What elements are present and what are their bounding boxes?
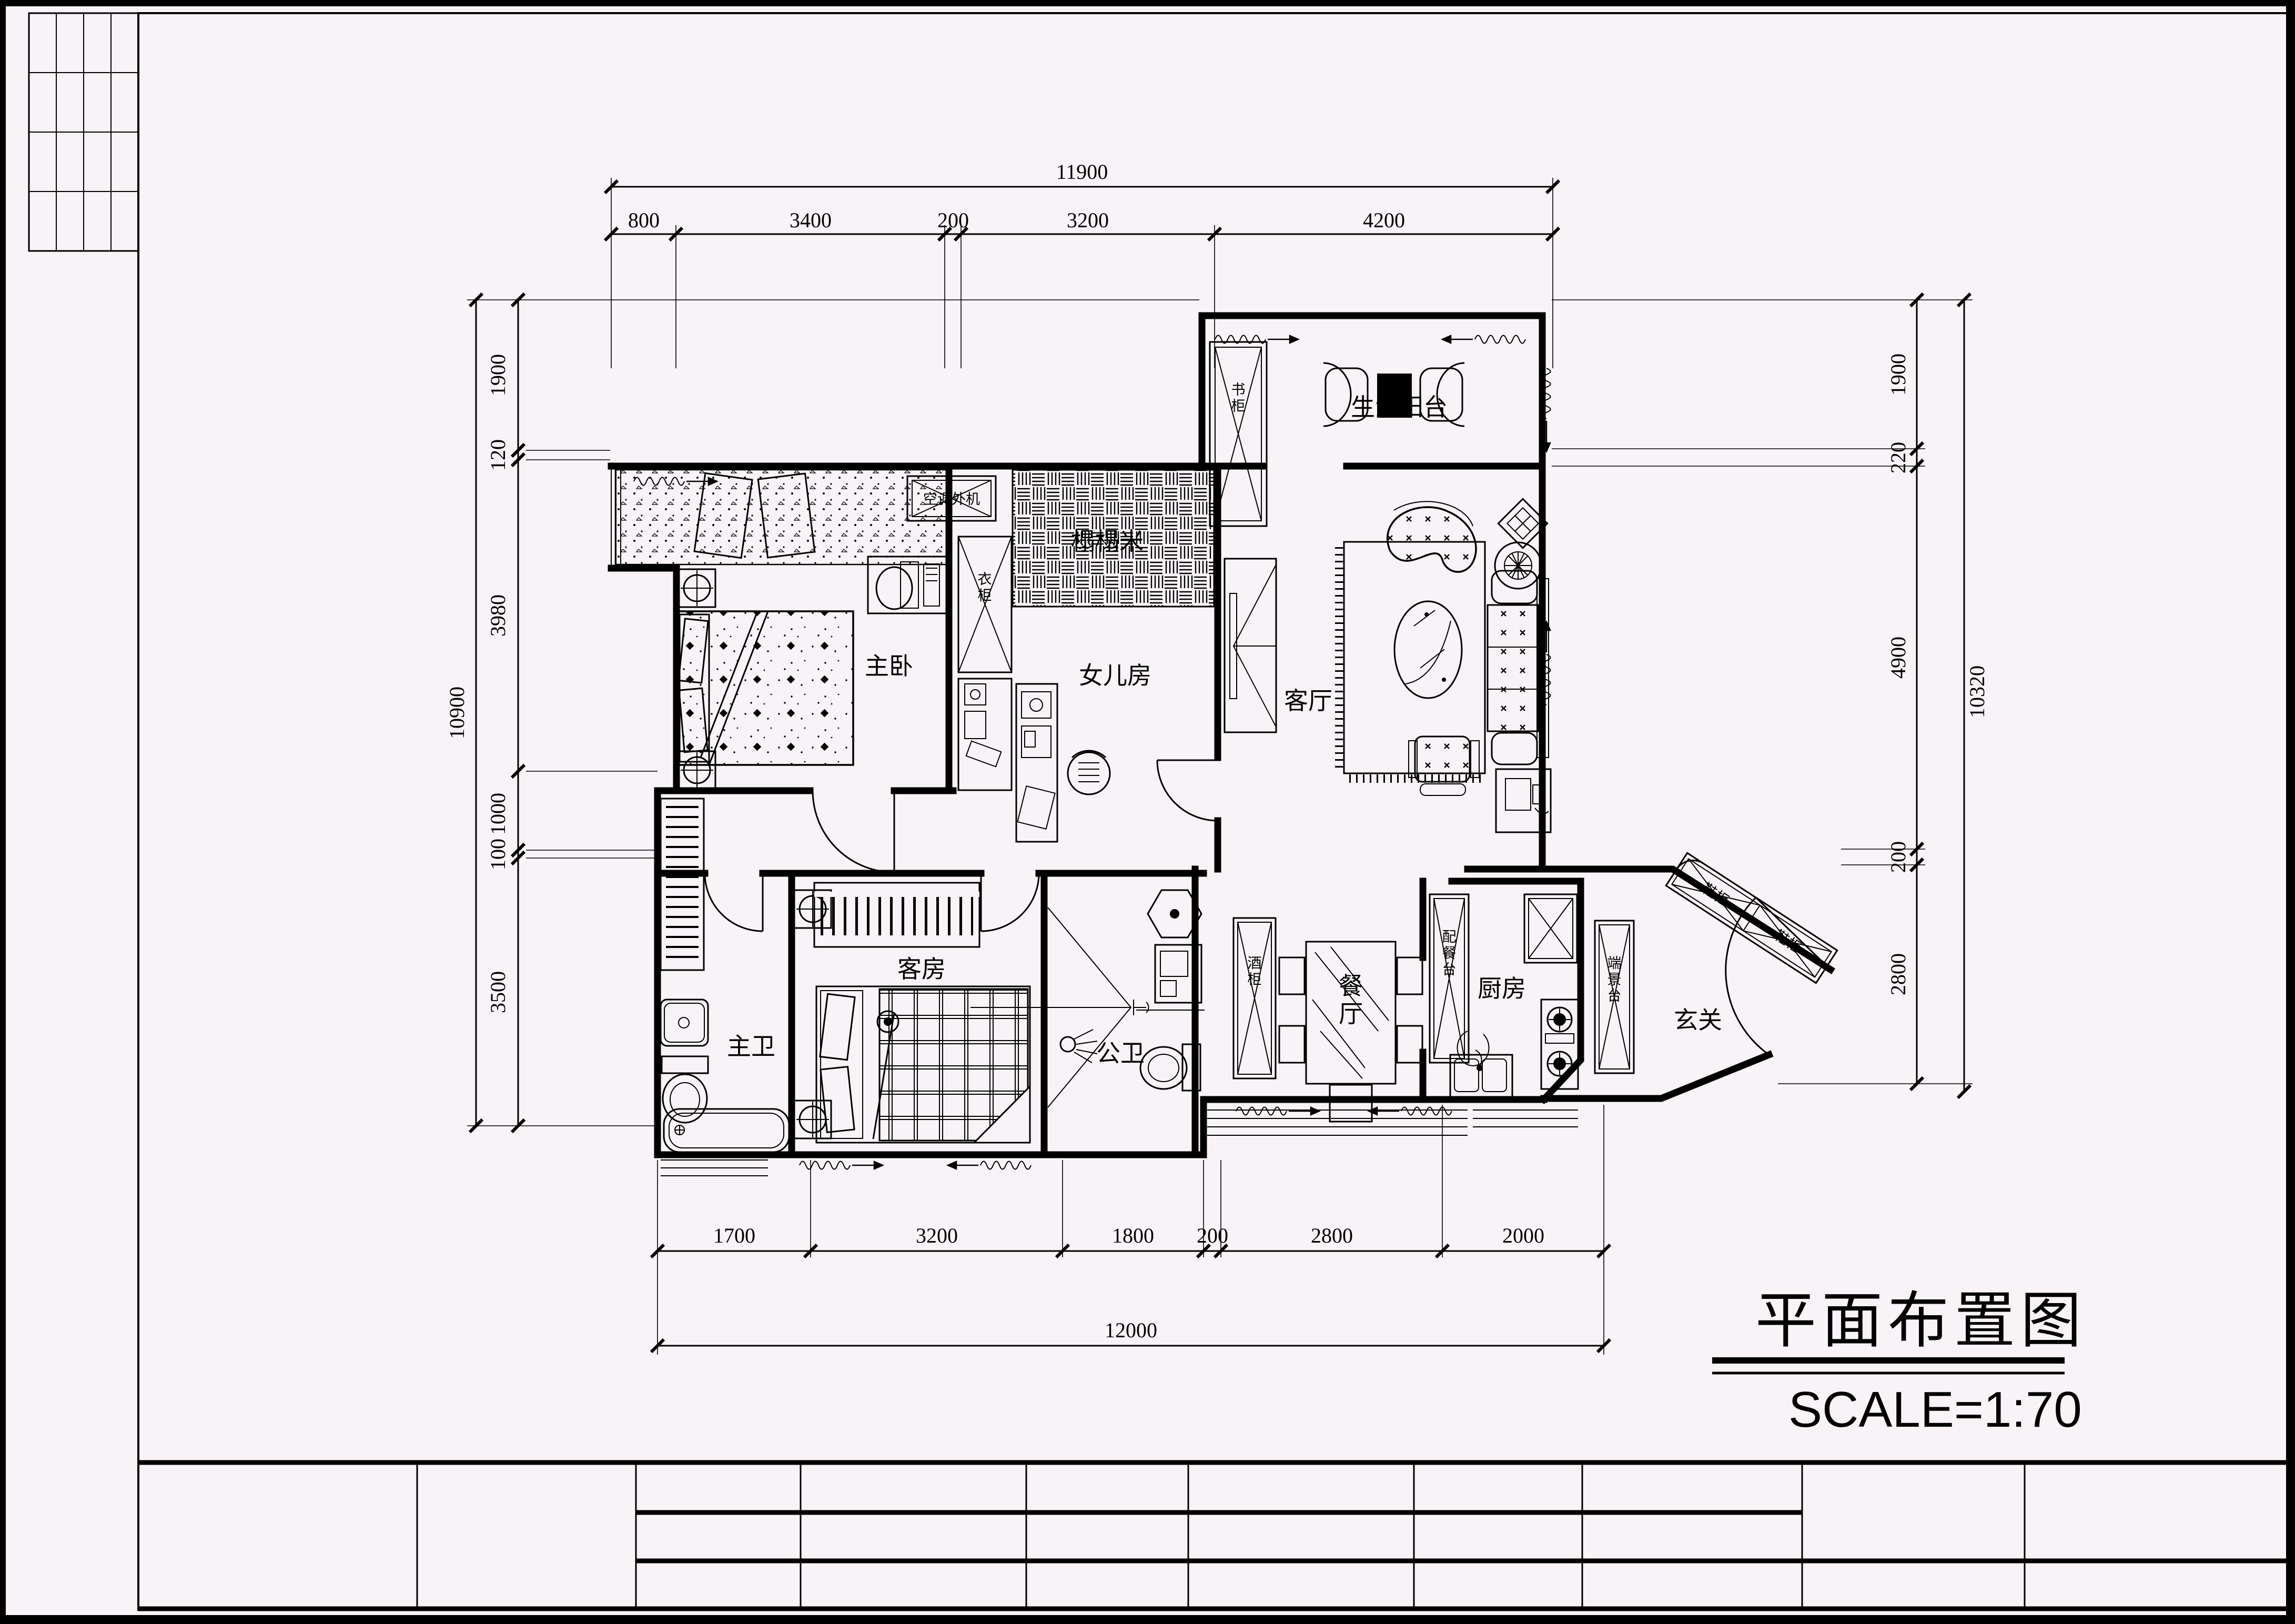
service-balcony-label: 生活阳台 bbox=[1351, 394, 1448, 421]
coffee-table-kidney bbox=[1388, 501, 1476, 572]
sheet-border bbox=[0, 0, 2295, 1624]
drawing-title-text: 平面布置图 bbox=[1755, 1288, 2087, 1355]
dim-bottom-seg-2: 1800 bbox=[1112, 1224, 1154, 1247]
fridge bbox=[1524, 894, 1577, 963]
signature-grid bbox=[29, 13, 138, 276]
dim-left-overall: 10900 bbox=[445, 687, 469, 739]
tv-arrow-icon bbox=[1234, 566, 1276, 726]
dining-table: 餐厅 bbox=[1279, 942, 1422, 1122]
dining-room: 酒柜 餐厅 bbox=[1234, 918, 1422, 1122]
wine-cabinet: 酒柜 bbox=[1234, 918, 1276, 1078]
dim-top-seg-4: 4200 bbox=[1363, 208, 1405, 232]
doors bbox=[705, 760, 1831, 1055]
dim-bottom-seg-5: 2000 bbox=[1502, 1224, 1544, 1247]
armchair bbox=[1409, 737, 1479, 795]
dim-left-seg-1: 120 bbox=[486, 439, 510, 471]
dim-bottom-seg-0: 1700 bbox=[713, 1224, 755, 1247]
master-bedroom: 主卧 bbox=[678, 557, 947, 789]
dim-left-seg-0: 1900 bbox=[486, 354, 510, 396]
dim-bottom-seg-4: 2800 bbox=[1311, 1224, 1353, 1247]
guest-room: 客房 bbox=[794, 883, 1030, 1143]
dim-chain-top: 11900 800 3400 200 3200 4200 bbox=[605, 160, 1559, 368]
toilet-public bbox=[1140, 1044, 1200, 1091]
dining-room-label: 餐厅 bbox=[1339, 972, 1363, 1027]
louver-cabinet bbox=[661, 799, 704, 970]
wine-cabinet-label: 酒柜 bbox=[1248, 955, 1262, 987]
console-table-label: 端景台 bbox=[1607, 955, 1622, 1004]
fan-plant bbox=[1495, 542, 1541, 589]
tv-wall bbox=[1225, 559, 1276, 732]
master-bedroom-label: 主卧 bbox=[865, 652, 913, 680]
dim-bottom-overall: 12000 bbox=[1105, 1318, 1157, 1342]
dim-right-seg-3: 200 bbox=[1886, 841, 1910, 873]
living-room: 客厅 bbox=[1225, 499, 1551, 832]
dim-top-seg-3: 3200 bbox=[1067, 208, 1109, 232]
dim-left-seg-5: 3500 bbox=[486, 971, 510, 1013]
wardrobe-label: 衣柜 bbox=[978, 571, 992, 603]
dim-bottom-seg-1: 3200 bbox=[916, 1224, 958, 1247]
dim-top-overall: 11900 bbox=[1056, 160, 1108, 184]
bath-sink bbox=[661, 1000, 708, 1046]
dim-right-seg-0: 1900 bbox=[1886, 354, 1910, 396]
shower-head bbox=[1060, 1030, 1097, 1063]
kitchen: 配餐台 厨房 bbox=[1430, 894, 1578, 1097]
title-block bbox=[138, 1462, 2287, 1609]
dim-left-seg-2: 3980 bbox=[486, 594, 510, 637]
cad-drawing: 11900 800 3400 200 3200 4200 1700 3200 1… bbox=[0, 0, 2295, 1624]
wardrobe: 衣柜 bbox=[958, 537, 1012, 790]
tatami-label: 榻榻米 bbox=[1071, 528, 1144, 555]
floor-plan-sheet: 11900 800 3400 200 3200 4200 1700 3200 1… bbox=[0, 0, 2295, 1624]
bay-window-seat bbox=[615, 470, 947, 564]
lamp-symbol bbox=[679, 569, 715, 607]
dim-left-seg-3: 1000 bbox=[486, 793, 510, 835]
entry-area: 鞋柜 鞋柜 端景台 玄关 bbox=[1595, 853, 1837, 1073]
dim-top-seg-0: 800 bbox=[628, 208, 660, 232]
console-table: 端景台 bbox=[1595, 921, 1634, 1073]
serving-counter: 配餐台 bbox=[1430, 894, 1469, 1063]
daughter-room-label: 女儿房 bbox=[1079, 662, 1151, 689]
guest-bed bbox=[816, 986, 1030, 1143]
service-balcony: 书柜 生活阳台 bbox=[1210, 342, 1464, 526]
bathtub bbox=[664, 1109, 789, 1152]
dim-right-seg-1: 220 bbox=[1886, 442, 1910, 473]
shoe-cabinet: 鞋柜 鞋柜 bbox=[1666, 853, 1837, 983]
guest-room-door bbox=[981, 873, 1039, 931]
kitchen-label: 厨房 bbox=[1478, 975, 1526, 1002]
dim-top-seg-1: 3400 bbox=[790, 208, 832, 232]
master-bedroom-door bbox=[813, 791, 894, 872]
entry-label: 玄关 bbox=[1674, 1006, 1722, 1034]
serving-counter-label: 配餐台 bbox=[1442, 929, 1457, 977]
dim-right-seg-2: 4900 bbox=[1886, 637, 1910, 679]
daughter-room: 女儿房 bbox=[1016, 662, 1151, 842]
drawing-scale-text: SCALE=1:70 bbox=[1788, 1381, 2082, 1438]
master-bed bbox=[678, 611, 853, 765]
bookcase-label: 书柜 bbox=[1231, 382, 1246, 414]
master-bathroom: 主卫 bbox=[661, 799, 789, 1152]
dim-left-seg-4: 100 bbox=[486, 839, 510, 870]
dim-top-seg-2: 200 bbox=[937, 208, 969, 232]
ac-unit-label: 空调外机 bbox=[923, 491, 980, 507]
drawing-title: 平面布置图 SCALE=1:70 bbox=[1712, 1288, 2087, 1438]
public-bath-label: 公卫 bbox=[1096, 1040, 1145, 1067]
dim-right-seg-4: 2800 bbox=[1886, 953, 1910, 995]
stove bbox=[1541, 1000, 1578, 1089]
master-bath-label: 主卫 bbox=[727, 1033, 775, 1060]
daughter-desk bbox=[1016, 684, 1057, 842]
entry-door bbox=[1726, 897, 1831, 1055]
dim-bottom-seg-3: 200 bbox=[1197, 1224, 1228, 1247]
guest-closet bbox=[814, 883, 979, 947]
dim-right-overall: 10320 bbox=[1965, 665, 1989, 718]
master-bath-door bbox=[705, 873, 763, 931]
daughter-room-door bbox=[1157, 760, 1218, 821]
living-room-label: 客厅 bbox=[1284, 687, 1332, 714]
glass-table-oval bbox=[1394, 601, 1462, 698]
kitchen-sink bbox=[1450, 1031, 1512, 1097]
guest-room-label: 客房 bbox=[897, 955, 946, 983]
tatami-area: 榻榻米 bbox=[1013, 470, 1214, 607]
daughter-chair bbox=[1068, 751, 1110, 794]
